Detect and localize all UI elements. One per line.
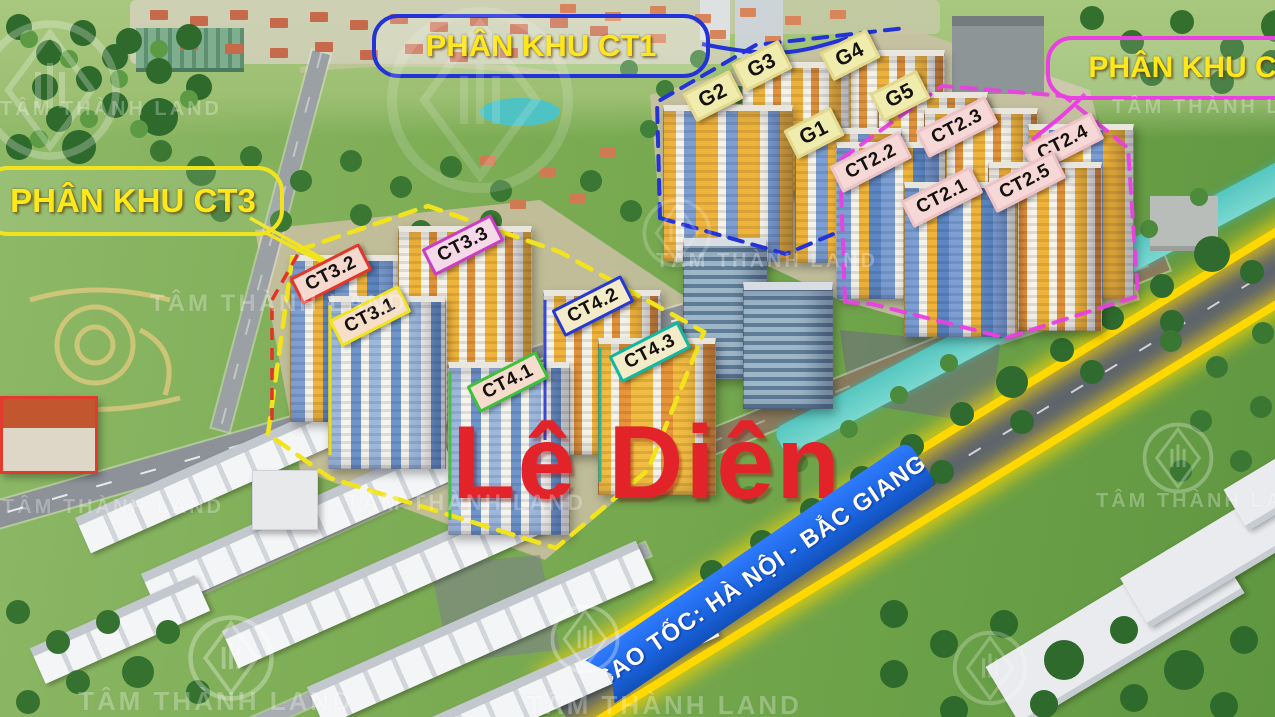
tree-cluster — [6, 600, 30, 624]
watermark-text: TÂM THÀNH LAND — [2, 496, 224, 519]
tree-line-road — [840, 420, 858, 438]
townhouse-row — [30, 575, 210, 684]
masterplan-rendering: G2 G3 G4 G1 G5 CT2.2 CT2.3 CT2.4 CT2.1 C… — [0, 0, 1275, 717]
watermark-text: TÂM THÀNH LAND — [150, 290, 408, 318]
watermark-text: TÂM THÀNH LAND — [346, 490, 586, 516]
watermark-logo-icon — [548, 602, 622, 676]
white-box-building — [252, 470, 318, 530]
zone-bubble-ct3: PHÂN KHU CT3 — [0, 166, 284, 236]
watermark-text: TÂM THÀNH LAND — [78, 686, 354, 717]
green-midrise-building — [136, 28, 244, 72]
watermark-text: TÂM THÀNH LAND — [1096, 490, 1275, 513]
zone-bubble-ct2: PHÂN KHU CT2 — [1046, 36, 1275, 100]
watermark-text: TÂM THÀNH LAND — [526, 690, 802, 717]
low-concrete-building — [1150, 196, 1218, 251]
red-outlined-building — [0, 396, 98, 474]
watermark-text: TÂM THÀNH LAND — [656, 250, 878, 273]
watermark-logo-icon — [0, 15, 125, 165]
tree-cluster — [1160, 330, 1182, 352]
gray-flat-building — [952, 16, 1044, 94]
watermark-logo-icon — [380, 0, 580, 200]
villa-houses — [600, 148, 616, 157]
tree-cluster — [1080, 6, 1104, 30]
office-tower — [743, 282, 833, 409]
watermark-logo-icon — [1140, 420, 1216, 496]
tree-cluster — [880, 600, 908, 628]
suburb-houses — [150, 10, 168, 20]
watermark-text: TÂM THÀNH LAND — [1112, 96, 1275, 119]
tree-cluster — [150, 140, 172, 162]
watermark-logo-icon — [950, 628, 1030, 708]
watermark-text: TÂM THÀNH LAND — [0, 98, 222, 121]
